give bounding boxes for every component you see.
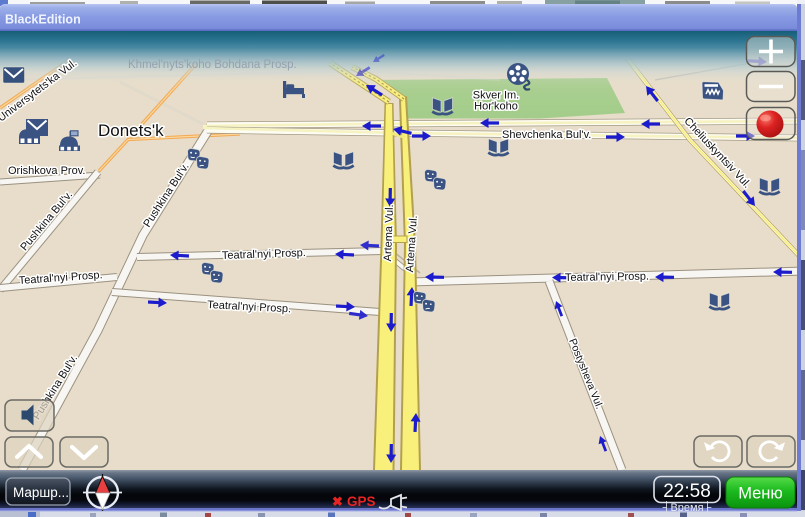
svg-text:GPS: GPS xyxy=(347,494,376,509)
svg-text:22:58: 22:58 xyxy=(663,481,711,502)
svg-text:Teatral'nyi Prosp.: Teatral'nyi Prosp. xyxy=(565,271,649,284)
svg-text:✖: ✖ xyxy=(332,494,343,509)
svg-text:Hor'koho: Hor'koho xyxy=(474,101,518,113)
svg-text:Khmel'nyts'koho Bohdana Prosp.: Khmel'nyts'koho Bohdana Prosp. xyxy=(128,59,297,71)
svg-text:Маршр...: Маршр... xyxy=(13,485,69,500)
svg-text:BlackEdition: BlackEdition xyxy=(5,13,81,27)
svg-text:Orishkova Prov.: Orishkova Prov. xyxy=(8,165,85,177)
svg-text:Shevchenka Bul'v.: Shevchenka Bul'v. xyxy=(502,129,591,141)
svg-text:Меню: Меню xyxy=(738,485,783,503)
svg-text:Artema Vul.: Artema Vul. xyxy=(382,204,396,261)
svg-text:Donets'k: Donets'k xyxy=(98,121,164,140)
